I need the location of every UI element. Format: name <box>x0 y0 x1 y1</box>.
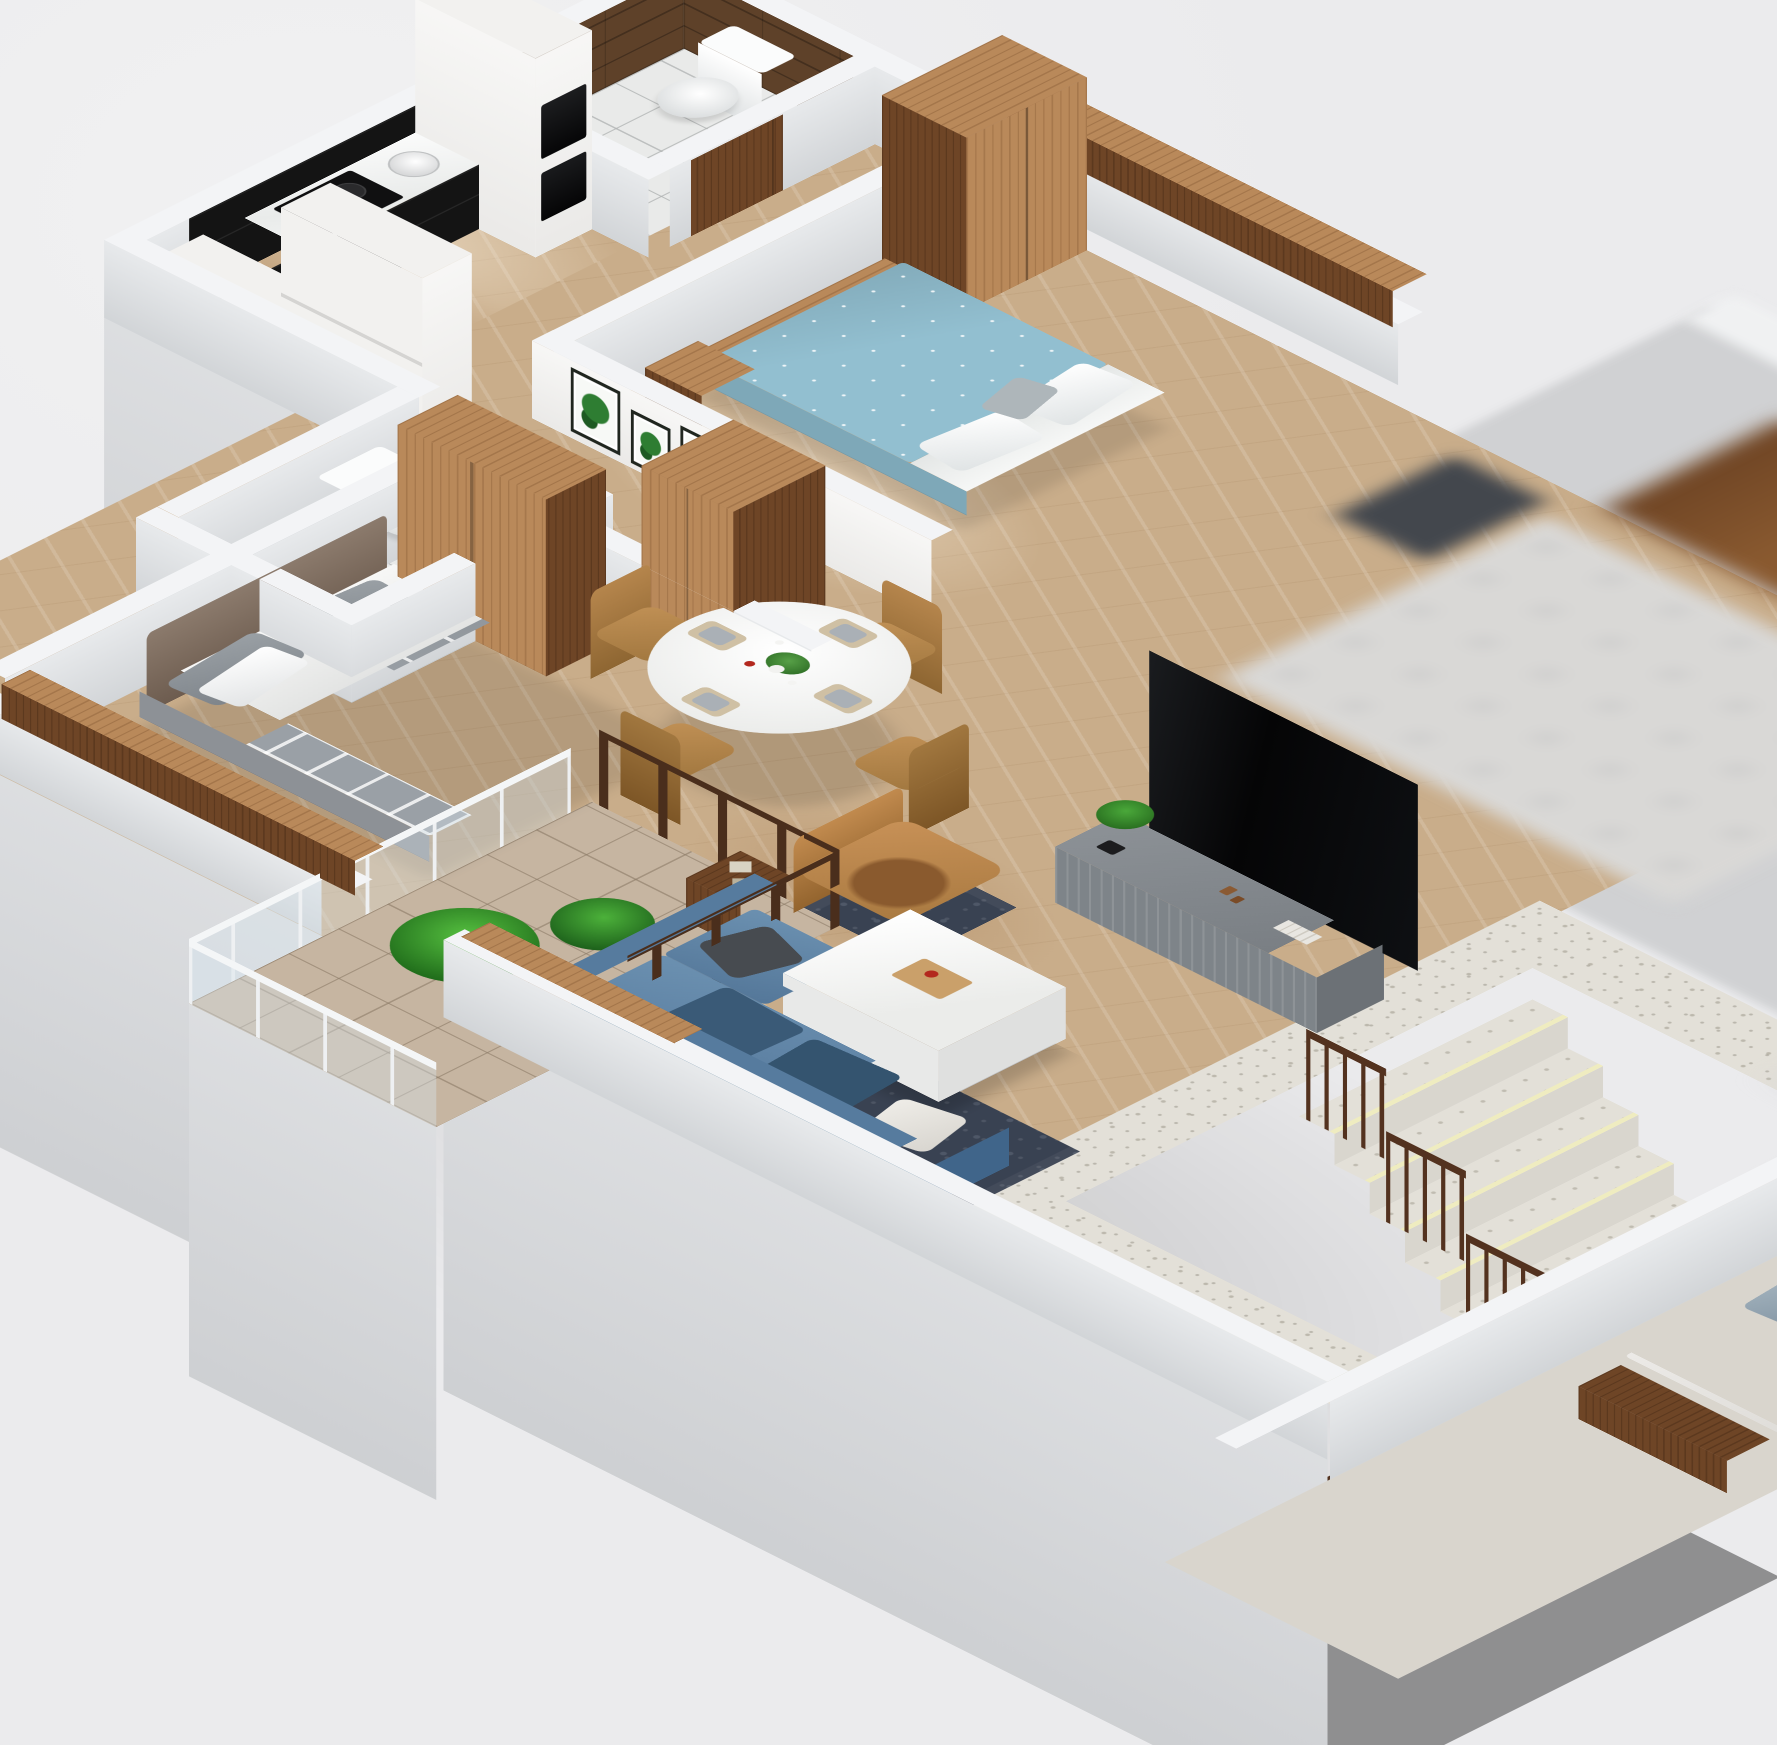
side-table-plate <box>730 861 752 872</box>
floorplan-scene <box>0 0 1777 1745</box>
centerpiece-plant <box>757 648 819 679</box>
red-accent <box>742 660 758 668</box>
cup <box>773 639 786 645</box>
cup <box>786 680 799 686</box>
